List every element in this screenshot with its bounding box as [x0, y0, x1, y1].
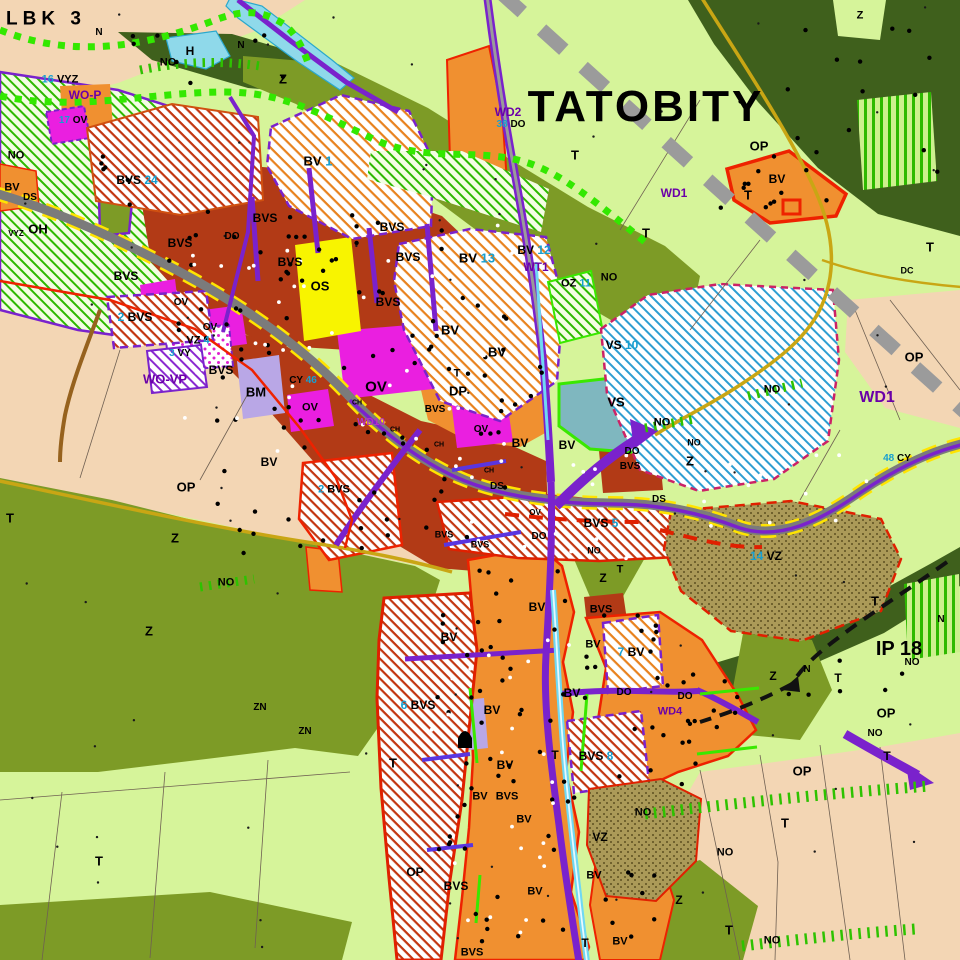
label-text: OV — [302, 402, 318, 414]
label-text: DS — [652, 494, 666, 505]
label-text: T — [389, 756, 397, 771]
label-text: VS — [607, 395, 624, 410]
label-text: DO — [617, 687, 632, 698]
zone-label: T — [926, 241, 934, 254]
zone-label: ZN — [253, 703, 266, 713]
zone-label: BVS — [620, 462, 641, 472]
label-text: Z — [171, 531, 179, 546]
label-text: BV — [516, 814, 531, 826]
zone-label: OS — [311, 280, 330, 293]
label-text: DS — [23, 192, 37, 203]
zone-label: DO — [625, 447, 640, 457]
zone-label: NO — [218, 578, 235, 589]
zone-label: BVS 5 — [584, 517, 619, 529]
zone-label: Z — [599, 572, 606, 584]
label-text: CH — [484, 468, 494, 475]
label-text: Z — [279, 72, 287, 87]
label-text: NO — [717, 847, 734, 859]
label-text: CY — [289, 375, 306, 386]
label-text: DO — [532, 531, 547, 542]
label-text: BV — [585, 639, 600, 651]
zone-label: NO — [717, 848, 734, 859]
label-text: BV — [628, 645, 645, 659]
label-text: N — [95, 27, 102, 38]
zone-label: VYZ — [8, 230, 24, 238]
label-text: WD10 — [357, 417, 385, 428]
label-text: BVS — [411, 698, 436, 712]
label-text: N — [803, 664, 810, 675]
label-text: T — [551, 748, 558, 762]
zone-label: N — [95, 28, 102, 38]
zone-label: T — [781, 817, 789, 830]
zone-label: Z — [145, 625, 153, 638]
label-text: VZ — [592, 830, 607, 844]
label-text: OV — [174, 297, 188, 308]
zone-label: CY 46 — [289, 376, 317, 386]
label-text: Z — [857, 10, 864, 22]
label-text: OP — [793, 764, 812, 779]
zone-label: BV — [564, 687, 581, 699]
label-text: BV — [472, 791, 487, 803]
zone-label: BV — [559, 439, 576, 451]
label-text: NO — [687, 438, 701, 448]
zone-label: NO — [687, 439, 701, 448]
label-text: BVS — [461, 947, 484, 959]
label-text: VS — [606, 338, 625, 352]
zone-label: BVS — [461, 948, 484, 959]
label-text: LBK 3 — [6, 9, 86, 30]
zone-label: NO — [654, 418, 671, 429]
zone-label: OP — [905, 351, 924, 364]
zone-label: BV — [512, 437, 529, 449]
zone-label: NO — [905, 658, 920, 668]
label-text: TATOBITY — [528, 82, 765, 131]
zone-label: 6 BVS — [401, 699, 436, 711]
label-text: BV — [488, 345, 506, 360]
label-text: CH — [352, 400, 362, 407]
label-text: BVS — [444, 879, 469, 893]
zone-label: BVS — [435, 531, 454, 540]
label-text: BVS — [471, 540, 490, 550]
label-text: Z — [686, 454, 694, 469]
zone-label: BV — [472, 792, 487, 803]
zone-label: CH — [484, 468, 494, 475]
zone-label: WO-P — [69, 89, 102, 101]
label-text: NO — [654, 417, 671, 429]
zone-label: BV — [488, 346, 506, 359]
label-text: T — [642, 226, 650, 241]
label-text: DO — [510, 119, 525, 130]
zone-label: H — [186, 45, 195, 57]
label-text: 24 — [144, 173, 157, 187]
zone-label: OV — [203, 323, 217, 333]
zone-label: BV — [484, 704, 501, 716]
label-text: BVS — [114, 269, 139, 283]
map-title: TATOBITY — [528, 85, 765, 129]
zone-label: BVS — [376, 296, 401, 308]
zone-label: T — [883, 750, 890, 762]
zone-label: OP — [793, 765, 812, 778]
zone-label: WT1 — [523, 261, 548, 273]
label-text: Z — [599, 571, 606, 585]
label-text: T — [834, 671, 841, 685]
zone-label: Z — [675, 894, 682, 906]
zone-label: BM — [246, 386, 266, 399]
zone-label: BVS — [114, 270, 139, 282]
zone-label: Z — [686, 455, 694, 468]
zone-label: OV — [174, 298, 188, 308]
zone-label: BV — [261, 456, 278, 468]
zone-label: T — [389, 757, 397, 770]
label-text: T — [781, 816, 789, 831]
zone-label: T — [834, 672, 841, 684]
label-text: BV — [261, 455, 278, 469]
zone-label: OH — [28, 223, 48, 236]
label-text: 2 — [318, 484, 327, 496]
zone-label: BV — [516, 815, 531, 826]
zone-label: T — [6, 512, 14, 525]
zone-label: 17 OV — [59, 116, 87, 126]
zone-label: T — [744, 189, 752, 202]
label-text: DS — [490, 481, 504, 492]
label-text: BV — [586, 870, 601, 882]
zone-label: VS — [607, 396, 624, 409]
label-text: NO — [160, 57, 177, 69]
label-text: OV — [73, 115, 87, 126]
zone-label: BV — [769, 173, 786, 185]
label-text: CH — [390, 427, 400, 434]
label-text: BVS — [584, 516, 612, 530]
label-text: VZ — [186, 335, 203, 347]
zone-label: BVS — [496, 792, 519, 803]
zone-label: WD1 — [859, 390, 895, 406]
label-text: OP — [877, 706, 896, 721]
zone-label: T — [871, 595, 879, 608]
zone-label: T — [571, 149, 579, 162]
zone-label: NO — [601, 273, 618, 284]
zone-label: BV — [497, 759, 514, 771]
zone-label: OZ 11 — [561, 279, 591, 290]
label-text: NO — [8, 150, 25, 162]
label-text: T — [926, 240, 934, 255]
zone-label: BVS — [209, 364, 234, 376]
label-text: BVS — [380, 220, 405, 234]
zone-label: Z — [279, 73, 287, 86]
label-text: BVS — [128, 310, 153, 324]
label-text: OZ — [561, 278, 579, 290]
label-text: BM — [246, 385, 266, 400]
zone-label: WD1 — [661, 187, 688, 199]
zone-label: VZ — [592, 831, 607, 843]
zone-label: NO — [868, 729, 883, 739]
label-text: BVS — [278, 255, 303, 269]
label-text: DC — [901, 266, 914, 276]
zone-label: Z — [171, 532, 179, 545]
label-text: OV — [203, 322, 217, 333]
label-text: WD1 — [661, 186, 688, 200]
label-text: 14 — [750, 549, 767, 563]
zone-label: NO — [764, 385, 781, 396]
zone-label: NO — [8, 151, 25, 162]
zone-label: DS — [490, 482, 504, 492]
zone-label: CH — [434, 442, 444, 449]
label-text: OP — [750, 139, 769, 154]
label-text: 7 — [618, 645, 628, 659]
label-text: BV — [564, 686, 581, 700]
label-text: BVS — [327, 484, 350, 496]
label-text: BVS — [620, 461, 641, 472]
label-text: T — [744, 188, 752, 203]
label-text: H — [186, 44, 195, 58]
label-text: T — [883, 749, 890, 763]
zone-label: BVS 8 — [579, 750, 614, 762]
label-layer: TATOBITYLBK 3HNNNONOZ16 VYZWO-P17 OVVYZO… — [0, 0, 960, 960]
zone-label: OP — [877, 707, 896, 720]
label-text: WD2 — [495, 105, 522, 119]
label-text: DO — [625, 446, 640, 457]
label-text: VYZ — [8, 229, 24, 238]
ip-corridor-label: IP 18 — [876, 639, 922, 659]
zone-label: N — [937, 615, 944, 625]
label-text: BV — [441, 630, 458, 644]
zone-label: 2 BVS — [118, 311, 153, 323]
label-text: 6 — [401, 698, 411, 712]
label-text: CY — [897, 453, 911, 464]
label-text: Z — [145, 624, 153, 639]
zone-label: DS — [652, 495, 666, 505]
label-text: BV — [459, 251, 481, 266]
zone-label: BVS — [444, 880, 469, 892]
zone-label: N — [803, 665, 810, 675]
zone-label: T — [725, 924, 733, 937]
zone-label: T — [617, 565, 624, 576]
zone-label: BVS — [278, 256, 303, 268]
zone-label: WO-VP — [143, 373, 187, 386]
label-text: BVS — [496, 791, 519, 803]
zone-label: OV — [474, 425, 488, 435]
label-text: 46 — [306, 375, 317, 386]
zone-label: ZN — [298, 727, 311, 737]
label-text: T — [617, 564, 624, 576]
label-text: NO — [764, 384, 781, 396]
label-text: DO — [678, 691, 693, 702]
label-text: BV — [517, 243, 537, 257]
zone-label: WD10 — [357, 418, 385, 428]
label-text: WD1 — [859, 389, 895, 406]
zone-label: CH — [390, 427, 400, 434]
zone-label: WD2 — [495, 106, 522, 118]
label-text: WT1 — [523, 260, 548, 274]
label-text: BV — [4, 182, 19, 194]
zone-label: BVS — [425, 405, 446, 415]
zone-label: BVS — [168, 237, 193, 249]
zone-label: BVS — [396, 251, 421, 263]
label-text: BV — [527, 886, 542, 898]
zone-label: OP — [177, 481, 196, 494]
label-text: WO-VP — [143, 372, 187, 387]
label-text: BV — [769, 172, 786, 186]
label-text: 13 — [481, 251, 495, 266]
zone-label: OP — [750, 140, 769, 153]
zone-label: BVS — [380, 221, 405, 233]
zone-label: T — [551, 749, 558, 761]
label-text: ZN — [253, 702, 266, 713]
label-text: 17 — [59, 115, 73, 126]
zone-label: BV 12 — [517, 244, 550, 256]
label-text: 8 — [607, 749, 614, 763]
label-text: T — [454, 368, 461, 380]
label-text: BV — [559, 438, 576, 452]
label-text: VZ — [767, 549, 782, 563]
label-text: NO — [587, 546, 601, 556]
label-text: 2 — [118, 310, 128, 324]
label-text: 16 — [42, 74, 57, 86]
label-text: CH — [434, 442, 444, 449]
zone-label: DO — [617, 688, 632, 698]
label-text: 4 — [204, 335, 210, 347]
zoning-map-canvas[interactable]: TATOBITYLBK 3HNNNONOZ16 VYZWO-P17 OVVYZO… — [0, 0, 960, 960]
label-text: T — [6, 511, 14, 526]
label-text: OV — [365, 379, 387, 396]
zone-label: BV — [586, 871, 601, 882]
label-text: Z — [769, 669, 776, 683]
zone-label: BV 1 — [304, 155, 333, 168]
zone-label: T — [581, 937, 588, 949]
label-text: OP — [905, 350, 924, 365]
zone-label: OV — [365, 380, 387, 395]
zone-label: DS — [23, 193, 37, 203]
label-text: OV — [529, 508, 541, 517]
zone-label: Z — [857, 11, 864, 22]
zone-label: 16 VYZ — [42, 75, 79, 86]
zone-label: BV — [441, 631, 458, 643]
zone-label: 2 BVS — [318, 485, 350, 496]
zone-label: BV 13 — [459, 252, 495, 265]
label-text: BVS — [116, 173, 144, 187]
label-text: NO — [218, 577, 235, 589]
label-text: WD4 — [658, 706, 682, 718]
zone-label: 48 CY — [883, 454, 911, 464]
label-text: 5 — [612, 516, 619, 530]
label-text: NO — [764, 935, 781, 947]
label-text: T — [871, 594, 879, 609]
label-text: BV — [304, 154, 326, 169]
zone-label: OP — [406, 866, 423, 878]
zone-label: DO — [532, 532, 547, 542]
zone-label: BV — [612, 937, 627, 948]
zone-label: BVS — [253, 212, 278, 224]
label-text: OP — [177, 480, 196, 495]
label-text: DP — [449, 384, 467, 399]
label-text: 48 — [883, 453, 897, 464]
label-text: BVS — [590, 604, 613, 616]
label-text: NO — [635, 807, 652, 819]
label-text: BVS — [209, 363, 234, 377]
zone-label: NO — [635, 808, 652, 819]
zone-label: NO — [587, 547, 601, 556]
label-text: 38 — [497, 119, 511, 130]
zone-label: 38 DO — [497, 120, 526, 130]
zone-label: WD4 — [658, 707, 682, 718]
zone-label: DC — [901, 267, 914, 276]
label-text: WO-P — [69, 88, 102, 102]
zone-label: Z — [769, 670, 776, 682]
label-text: VY — [178, 348, 191, 359]
zone-label: OV — [302, 403, 318, 414]
label-text: OH — [28, 222, 48, 237]
zone-label: VZ 4 — [186, 336, 209, 347]
label-text: BVS — [425, 404, 446, 415]
label-text: OP — [406, 865, 423, 879]
label-text: BVS — [376, 295, 401, 309]
zone-label: OV — [529, 509, 541, 517]
zone-label: T — [454, 369, 461, 380]
label-text: 12 — [537, 243, 550, 257]
label-text: DO — [225, 231, 240, 242]
zone-label: BVS 24 — [116, 174, 157, 186]
zone-label: BVS — [471, 541, 490, 550]
label-text: BVS — [579, 749, 607, 763]
label-text: OS — [311, 279, 330, 294]
label-text: NO — [601, 272, 618, 284]
label-text: NO — [905, 657, 920, 668]
zone-label: 7 BV — [618, 646, 645, 658]
zone-label: DP — [449, 385, 467, 398]
label-text: T — [571, 148, 579, 163]
label-text: 10 — [625, 338, 638, 352]
label-text: T — [725, 923, 733, 938]
zone-label: BV — [4, 183, 19, 194]
label-text: N — [937, 614, 944, 625]
zone-label: BV — [527, 887, 542, 898]
zone-label: 14 VZ — [750, 550, 782, 562]
label-text: NO — [868, 728, 883, 739]
zone-label: DO — [678, 692, 693, 702]
label-text: T — [581, 936, 588, 950]
label-text: BVS — [168, 236, 193, 250]
zone-label: NO — [764, 936, 781, 947]
label-text: N — [237, 40, 244, 51]
zone-label: T — [95, 855, 103, 868]
label-text: BV — [484, 703, 501, 717]
label-text: BV — [512, 436, 529, 450]
zone-label: 3 VY — [169, 349, 191, 359]
label-text: BVS — [253, 211, 278, 225]
zone-label: VS 10 — [606, 339, 639, 351]
label-text: BVS — [396, 250, 421, 264]
zone-label: T — [642, 227, 650, 240]
label-text: BV — [529, 600, 546, 614]
label-text: BV — [612, 936, 627, 948]
zone-label: CH — [352, 400, 362, 407]
label-text: 11 — [579, 278, 591, 290]
zone-label: BV — [441, 324, 459, 337]
label-text: BV — [497, 758, 514, 772]
zone-label: DO — [225, 232, 240, 242]
label-text: VYZ — [57, 74, 78, 86]
label-text: Z — [675, 893, 682, 907]
biocorridor-label: LBK 3 — [6, 10, 86, 29]
label-text: BV — [441, 323, 459, 338]
label-text: 1 — [325, 154, 332, 169]
zone-label: BV — [529, 601, 546, 613]
label-text: OV — [474, 424, 488, 435]
zone-label: BVS — [590, 605, 613, 616]
zone-label: NO — [160, 58, 177, 69]
zone-label: BV — [585, 640, 600, 651]
label-text: T — [95, 854, 103, 869]
label-text: ZN — [298, 726, 311, 737]
